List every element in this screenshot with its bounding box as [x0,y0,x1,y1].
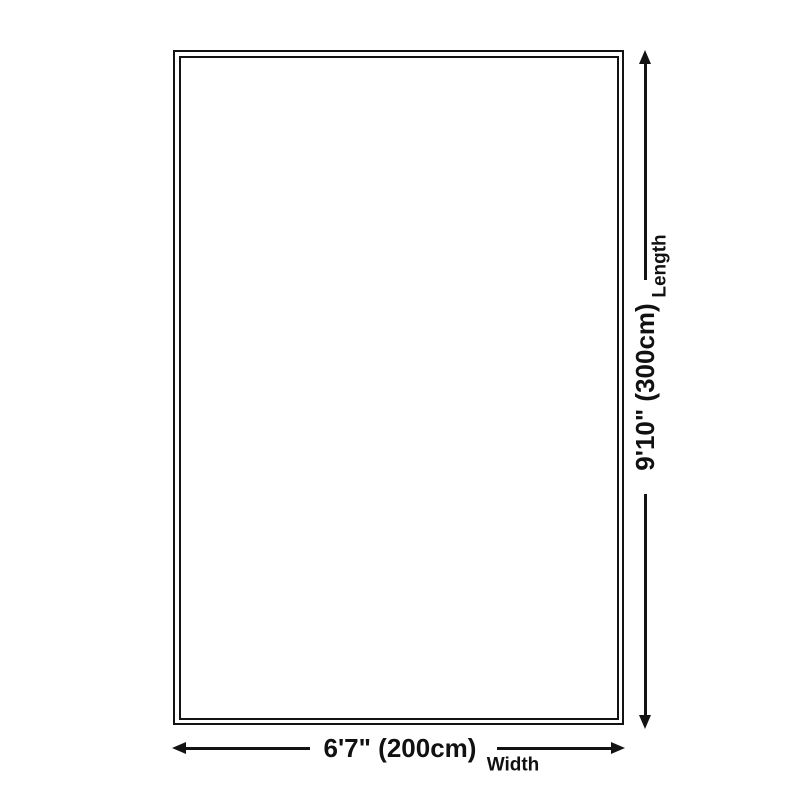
width-dimension-value: 6'7" (200cm) [324,735,477,761]
length-arrow-line-lower [644,494,647,715]
rug-outline [173,50,624,725]
arrow-left-icon [172,742,186,754]
rug-size-diagram: 9'10" (300cm) Length 6'7" (200cm) Width [0,0,800,800]
arrow-up-icon [639,50,651,64]
length-dimension-label: Length [651,234,670,297]
arrow-right-icon [611,742,625,754]
width-dimension-label: Width [487,756,540,775]
length-arrow-line-upper [644,62,647,280]
width-arrow-line-left [185,747,310,750]
length-dimension-value: 9'10" (300cm) [632,303,658,470]
arrow-down-icon [639,715,651,729]
rug-outline-inner [179,56,619,720]
width-arrow-line-right [497,747,612,750]
